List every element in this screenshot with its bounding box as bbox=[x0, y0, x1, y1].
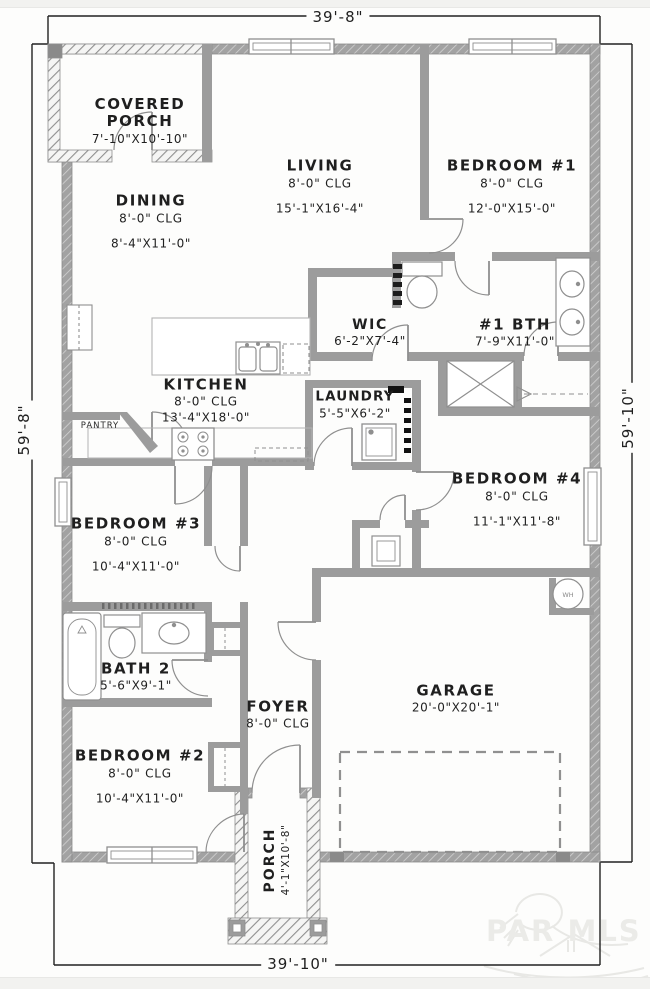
floorplan-svg: WH bbox=[0, 0, 650, 989]
utility-fixture bbox=[372, 536, 400, 566]
kitchen-sink bbox=[236, 342, 280, 374]
doors bbox=[114, 112, 558, 852]
hall-closet bbox=[208, 622, 240, 656]
window-bedroom4 bbox=[584, 468, 601, 545]
exterior-walls bbox=[48, 44, 600, 862]
water-heater: WH bbox=[549, 578, 594, 615]
window-living bbox=[249, 39, 334, 54]
closet-rod bbox=[517, 387, 588, 401]
kitchen-island bbox=[152, 318, 310, 375]
page-bottom-strip bbox=[0, 977, 650, 989]
washer bbox=[362, 424, 396, 460]
vanity-bath1 bbox=[556, 258, 590, 346]
toilet-1 bbox=[402, 262, 442, 308]
refrigerator bbox=[67, 305, 92, 350]
tub-bath2 bbox=[63, 613, 101, 700]
covered-porch-walls bbox=[48, 44, 212, 162]
water-heater-label: WH bbox=[562, 591, 573, 599]
toilet-2 bbox=[104, 615, 140, 658]
window-bedroom1 bbox=[469, 39, 556, 54]
floorplan-page: PAR MLS bbox=[0, 0, 650, 989]
page-top-strip bbox=[0, 0, 650, 8]
linen-closet bbox=[447, 361, 514, 407]
interior-walls bbox=[62, 44, 600, 862]
window-bedroom3 bbox=[55, 478, 71, 526]
range bbox=[172, 428, 214, 460]
dimension-lines bbox=[32, 16, 632, 965]
fixtures: WH bbox=[62, 258, 594, 852]
bedroom2-closet bbox=[208, 742, 240, 792]
window-bedroom2 bbox=[107, 847, 197, 863]
vanity-bath2 bbox=[142, 613, 206, 653]
garage-door-dashed bbox=[340, 752, 560, 852]
windows bbox=[55, 39, 601, 863]
